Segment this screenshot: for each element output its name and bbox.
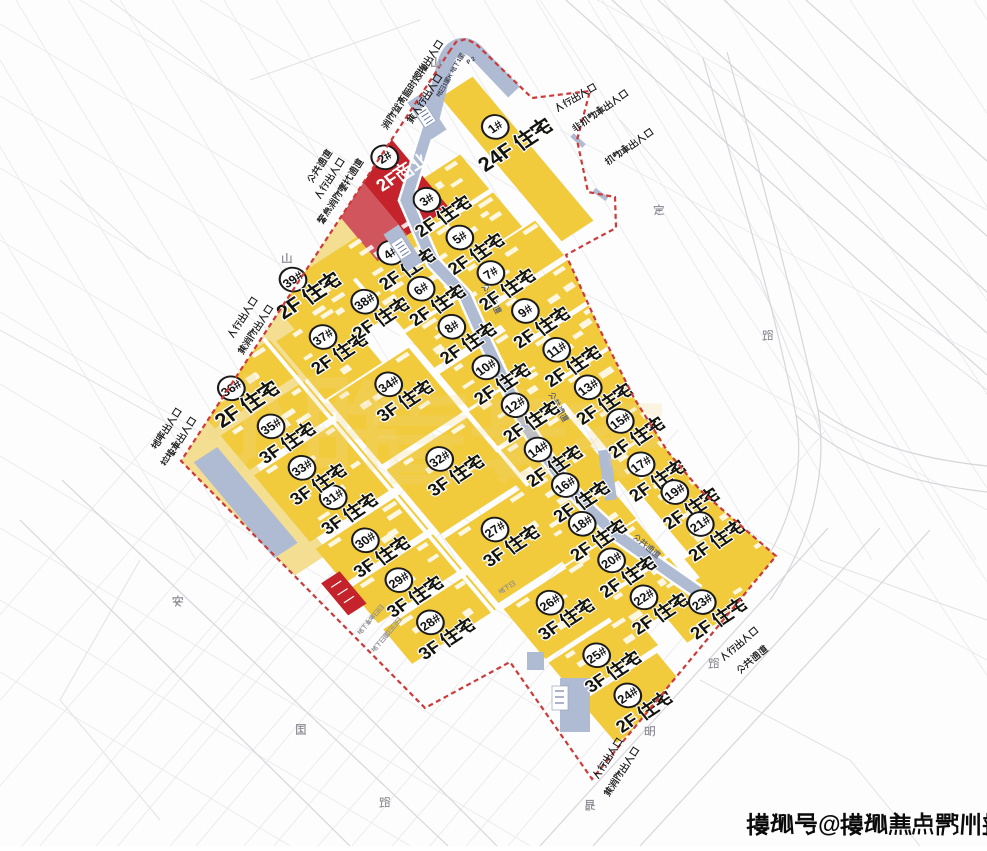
svg-text:@: @ xyxy=(818,811,840,837)
